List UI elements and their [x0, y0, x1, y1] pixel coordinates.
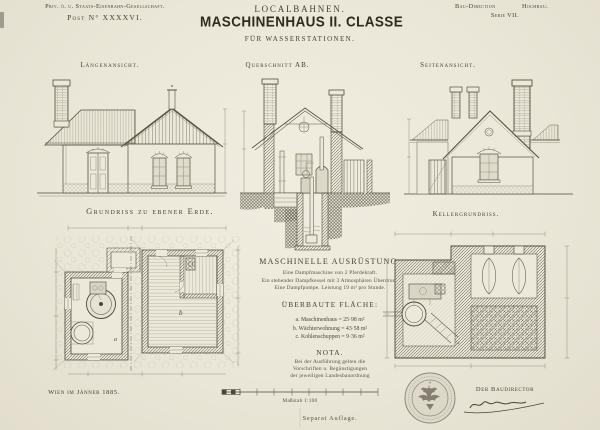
imperial-eagle-seal	[405, 373, 455, 423]
dimension-line	[407, 119, 411, 194]
room-label-a: a	[114, 337, 117, 343]
front-elevation-drawing	[37, 80, 227, 196]
side-door	[429, 160, 446, 194]
coal-shed-section	[344, 160, 372, 193]
stove-plan	[186, 258, 195, 270]
scale-bar	[222, 388, 378, 427]
dimension-line	[242, 111, 246, 193]
director-signature	[464, 402, 544, 413]
small-cellar-room	[433, 262, 455, 274]
entrance-opening	[156, 250, 167, 256]
well-plan	[402, 302, 426, 326]
door-opening	[112, 272, 122, 278]
steam-boiler	[316, 137, 328, 193]
basement-plan-drawing	[383, 232, 570, 369]
chimney	[53, 80, 70, 127]
pump-pipe	[310, 177, 314, 235]
machine-room-plan: a	[65, 272, 128, 360]
ground-floor-plan-drawing: a	[53, 226, 241, 377]
side-elevation-drawing	[404, 80, 573, 194]
second-chimney	[329, 90, 344, 193]
vaulted-cellar	[471, 254, 537, 298]
foundation-mass	[471, 306, 537, 350]
dwelling-plan: b	[142, 250, 223, 353]
roof-vent	[167, 86, 177, 109]
cross-section-drawing	[240, 79, 390, 250]
interior-window	[296, 154, 312, 175]
dimension-line	[223, 109, 227, 193]
well-plan	[71, 322, 93, 344]
drawing-sheet: Priv. ö. u. Staats-Eisenbahn-Gesellschaf…	[0, 0, 600, 430]
drawings-layer: a	[0, 0, 600, 430]
ridge-chimney	[467, 87, 479, 118]
coal-shed-plan	[107, 248, 140, 272]
door-opening	[180, 282, 184, 292]
room-label-b: b	[179, 309, 183, 317]
boiler-chimney	[262, 79, 278, 193]
gable-siding	[126, 109, 218, 144]
entrance-door	[86, 147, 110, 193]
gable-wing	[121, 86, 223, 193]
ridge-chimney	[450, 87, 462, 118]
